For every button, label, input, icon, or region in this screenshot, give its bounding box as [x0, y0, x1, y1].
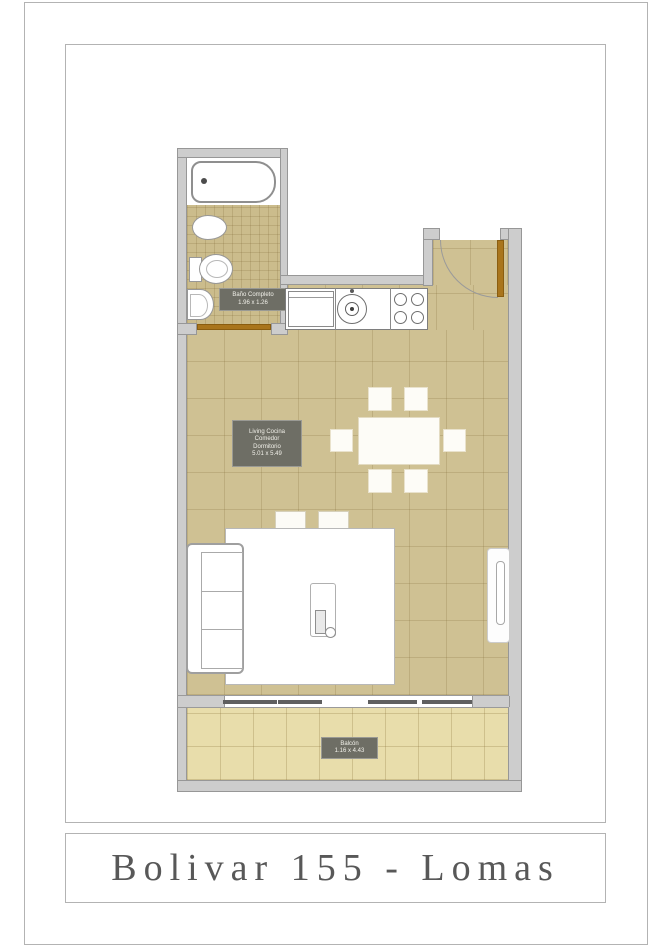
dining-chair — [443, 429, 466, 452]
bathroom-label-name: Baño Completo — [220, 292, 286, 300]
bathroom-label-size: 1.96 x 1.26 — [220, 300, 286, 308]
dining-chair — [404, 469, 428, 493]
kitchen-sink-drain — [350, 307, 354, 311]
wall-right — [508, 228, 522, 792]
living-label-line1: Living Cocina — [233, 429, 301, 437]
glass-panel-1 — [223, 700, 277, 704]
dining-chair — [368, 387, 392, 411]
table-lamp — [325, 627, 336, 638]
dining-chair — [404, 387, 428, 411]
radiator-slot — [496, 561, 505, 625]
bathroom-label: Baño Completo 1.96 x 1.26 — [219, 288, 287, 311]
floor-plan-page: { "title_plate": { "text": "Bolivar 155 … — [0, 0, 671, 950]
living-label-line4: 5.01 x 5.49 — [233, 451, 301, 459]
living-label-line3: Dormitorio — [233, 444, 301, 452]
stove-burner-1 — [394, 293, 407, 306]
window-wall-segment-left — [177, 696, 225, 707]
kitchen-faucet — [350, 289, 354, 293]
coffee-table — [310, 583, 336, 637]
bidet — [199, 254, 233, 284]
wall-shelf-radiator — [487, 548, 510, 643]
plan-title: Bolivar 155 - Lomas — [111, 846, 560, 890]
balcony-label-size: 1.16 x 4.43 — [322, 748, 377, 756]
balcony-window-wall — [177, 695, 508, 708]
wall-bathroom-top — [177, 148, 288, 158]
bathtub-drain — [201, 178, 207, 184]
dining-chair — [330, 429, 353, 452]
title-plate: Bolivar 155 - Lomas — [65, 833, 606, 903]
living-label-line2: Comedor — [233, 436, 301, 444]
bathroom-sink — [187, 289, 214, 320]
sofa-cushions — [201, 552, 243, 669]
bathroom-door-leaf — [197, 324, 271, 330]
wall-balcony-bottom — [177, 780, 522, 792]
wall-bathroom-bottom-left — [177, 323, 197, 335]
counter-divider-1 — [335, 288, 336, 330]
wall-kitchen-top — [280, 275, 433, 285]
stove-burner-2 — [411, 293, 424, 306]
sofa — [186, 543, 244, 674]
dining-table — [358, 417, 440, 465]
window-wall-segment-right — [472, 696, 510, 707]
stove-burner-3 — [394, 311, 407, 324]
living-room-label: Living Cocina Comedor Dormitorio 5.01 x … — [232, 420, 302, 467]
balcony-label-name: Balcón — [322, 741, 377, 749]
entry-door-leaf — [497, 240, 504, 297]
glass-panel-4 — [422, 700, 472, 704]
glass-panel-2 — [278, 700, 322, 704]
balcony-label: Balcón 1.16 x 4.43 — [321, 737, 378, 759]
dining-chair — [368, 469, 392, 493]
wall-entry-top-left — [423, 228, 440, 240]
counter-divider-2 — [390, 288, 391, 330]
kitchen-cabinet — [288, 291, 334, 327]
stove-burner-4 — [411, 311, 424, 324]
glass-panel-3 — [368, 700, 417, 704]
